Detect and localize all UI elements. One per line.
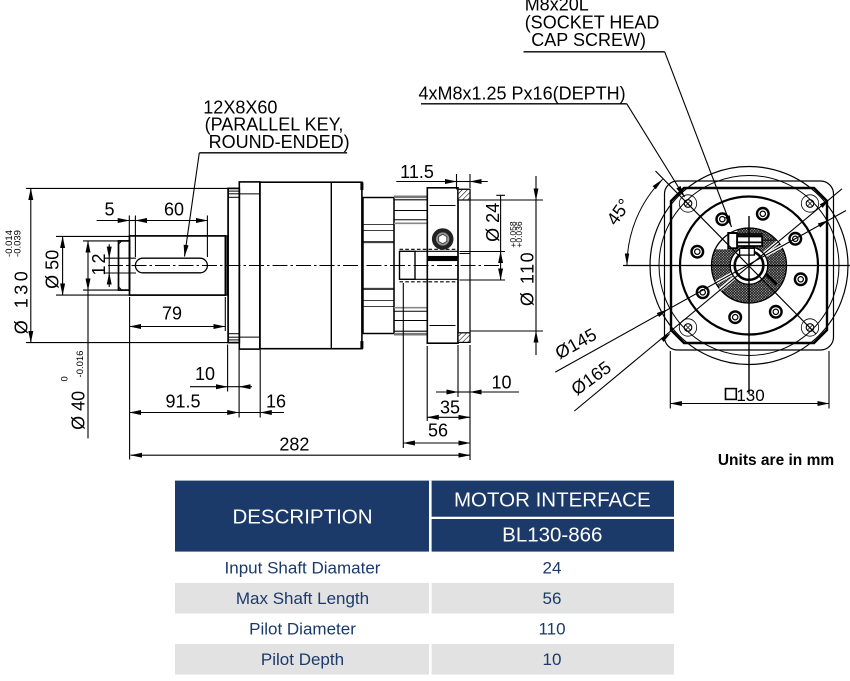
- svg-text:79: 79: [162, 303, 182, 323]
- svg-text:Ø 24: Ø 24: [483, 203, 503, 242]
- svg-text:12: 12: [89, 251, 109, 275]
- svg-text:5: 5: [104, 199, 114, 219]
- svg-text:91.5: 91.5: [165, 392, 200, 412]
- svg-text:Ø 40: Ø 40: [68, 391, 88, 430]
- svg-text:+0.036: +0.036: [514, 221, 524, 248]
- svg-text:4xM8x1.25 Px16(DEPTH): 4xM8x1.25 Px16(DEPTH): [419, 84, 626, 104]
- svg-text:BL130-866: BL130-866: [502, 524, 602, 547]
- svg-text:282: 282: [279, 435, 309, 455]
- svg-text:Units are in mm: Units are in mm: [718, 452, 834, 469]
- svg-text:24: 24: [543, 558, 562, 577]
- svg-text:16: 16: [266, 392, 286, 412]
- svg-text:CAP SCREW): CAP SCREW): [531, 30, 646, 50]
- svg-text:ROUND-ENDED): ROUND-ENDED): [209, 132, 350, 152]
- svg-text:10: 10: [491, 372, 511, 392]
- svg-text:DESCRIPTION: DESCRIPTION: [232, 506, 372, 529]
- svg-text:56: 56: [428, 421, 448, 441]
- svg-text:-0.039: -0.039: [13, 230, 24, 257]
- svg-text:Max Shaft Length: Max Shaft Length: [236, 589, 369, 608]
- svg-text:56: 56: [543, 589, 562, 608]
- svg-text:10: 10: [195, 364, 215, 384]
- svg-text:60: 60: [164, 199, 184, 219]
- svg-text:Ø 110: Ø 110: [518, 251, 538, 306]
- svg-text:110: 110: [538, 620, 565, 639]
- svg-text:MOTOR INTERFACE: MOTOR INTERFACE: [454, 489, 651, 512]
- svg-text:Input Shaft Diamater: Input Shaft Diamater: [225, 558, 381, 577]
- svg-text:-0.016: -0.016: [75, 351, 86, 378]
- svg-text:Ø 50: Ø 50: [43, 250, 63, 289]
- svg-text:Pilot Depth: Pilot Depth: [261, 650, 344, 669]
- svg-text:Ø 130: Ø 130: [12, 268, 32, 335]
- svg-text:Pilot Diameter: Pilot Diameter: [249, 620, 356, 639]
- svg-text:35: 35: [440, 398, 460, 418]
- svg-text:0: 0: [60, 376, 71, 381]
- svg-text:130: 130: [736, 386, 764, 405]
- svg-text:11.5: 11.5: [400, 162, 434, 182]
- svg-text:10: 10: [543, 650, 562, 669]
